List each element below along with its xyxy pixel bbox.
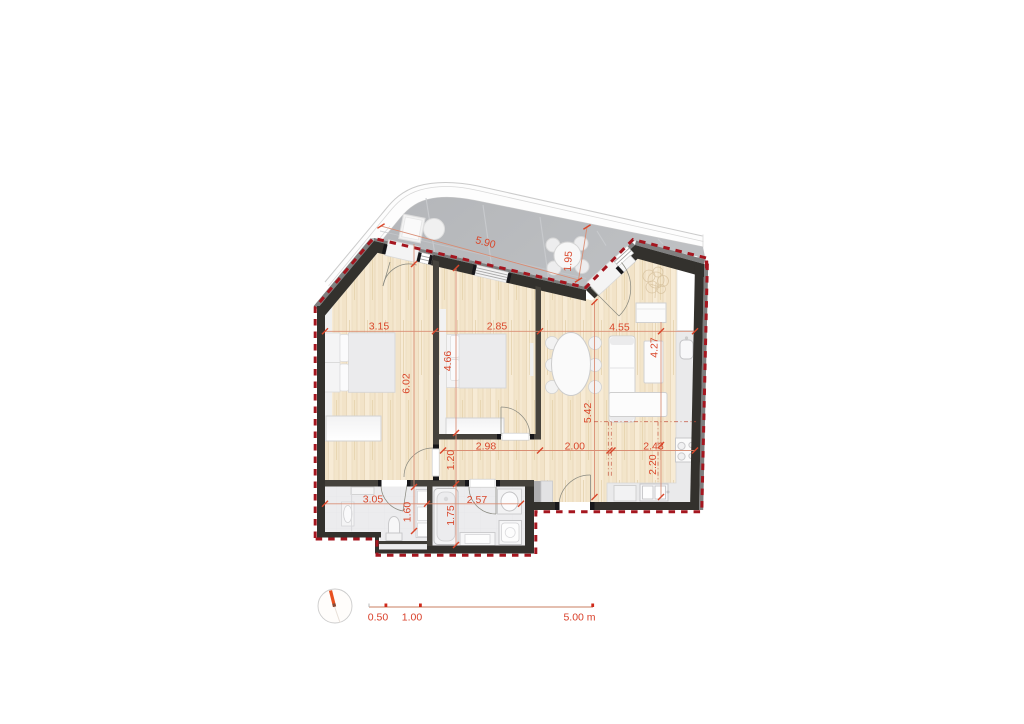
svg-text:0.50: 0.50 (368, 612, 389, 624)
svg-text:2.20: 2.20 (647, 454, 659, 475)
svg-text:2.57: 2.57 (467, 494, 488, 506)
svg-text:6.02: 6.02 (401, 373, 413, 394)
svg-text:2.98: 2.98 (476, 441, 497, 453)
svg-text:1.20: 1.20 (445, 450, 457, 471)
svg-text:4.27: 4.27 (649, 337, 661, 358)
svg-text:3.15: 3.15 (369, 320, 390, 332)
svg-text:4.55: 4.55 (609, 321, 630, 333)
svg-text:2.00: 2.00 (565, 441, 586, 453)
svg-text:2.43: 2.43 (643, 440, 664, 452)
svg-text:1.00: 1.00 (402, 612, 423, 624)
svg-text:3.05: 3.05 (363, 493, 384, 505)
svg-text:4.66: 4.66 (442, 351, 454, 372)
svg-text:1.60: 1.60 (401, 502, 413, 523)
svg-text:5.42: 5.42 (582, 403, 594, 424)
svg-text:1.95: 1.95 (562, 251, 575, 272)
svg-text:5.00 m: 5.00 m (563, 612, 595, 624)
svg-text:2.85: 2.85 (487, 320, 508, 332)
svg-text:1.75: 1.75 (445, 505, 457, 526)
